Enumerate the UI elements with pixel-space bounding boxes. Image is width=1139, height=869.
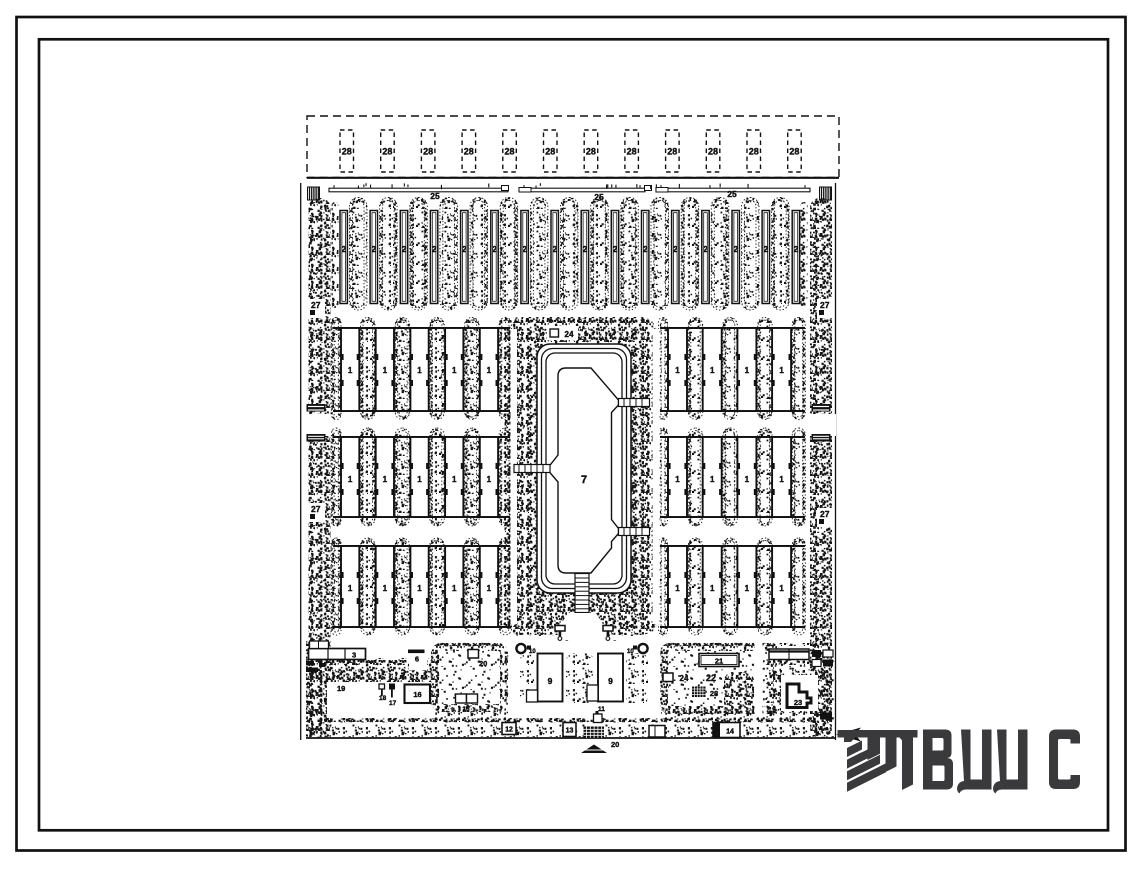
svg-text:2: 2 [643, 245, 648, 254]
svg-text:18: 18 [379, 695, 387, 702]
svg-text:22: 22 [706, 673, 716, 683]
svg-text:1: 1 [417, 475, 422, 484]
svg-text:28: 28 [504, 147, 514, 157]
svg-text:25: 25 [430, 191, 440, 201]
svg-text:21: 21 [715, 657, 723, 666]
svg-text:28: 28 [667, 147, 677, 157]
svg-text:1: 1 [383, 584, 388, 593]
svg-text:2: 2 [703, 245, 708, 254]
svg-text:2: 2 [402, 245, 407, 254]
svg-text:2: 2 [613, 245, 618, 254]
svg-text:1: 1 [675, 584, 680, 593]
svg-text:1: 1 [348, 584, 353, 593]
svg-text:2: 2 [673, 245, 678, 254]
svg-text:20: 20 [479, 659, 487, 668]
svg-text:27: 27 [820, 509, 830, 519]
svg-text:2: 2 [462, 245, 467, 254]
svg-text:1: 1 [745, 366, 750, 375]
svg-text:2: 2 [794, 245, 799, 254]
svg-text:10: 10 [627, 649, 634, 655]
svg-text:2: 2 [522, 245, 527, 254]
svg-text:11: 11 [598, 706, 605, 713]
svg-text:1: 1 [348, 366, 353, 375]
svg-text:1: 1 [417, 366, 422, 375]
svg-text:1: 1 [745, 475, 750, 484]
svg-text:1: 1 [383, 366, 388, 375]
svg-text:28: 28 [710, 689, 718, 698]
svg-text:2: 2 [432, 245, 437, 254]
svg-text:1: 1 [710, 366, 715, 375]
svg-text:1: 1 [452, 366, 457, 375]
svg-text:23: 23 [794, 698, 802, 707]
svg-text:1: 1 [487, 584, 492, 593]
svg-text:15: 15 [462, 706, 470, 713]
svg-text:13: 13 [566, 728, 574, 735]
svg-text:28: 28 [423, 147, 433, 157]
svg-text:9: 9 [548, 676, 553, 686]
svg-text:2: 2 [492, 245, 497, 254]
svg-text:20: 20 [611, 740, 619, 749]
svg-text:28: 28 [382, 147, 392, 157]
svg-text:1: 1 [417, 584, 422, 593]
svg-text:1: 1 [710, 584, 715, 593]
svg-text:1: 1 [675, 475, 680, 484]
svg-text:27: 27 [311, 300, 321, 310]
svg-text:1: 1 [348, 475, 353, 484]
svg-text:1: 1 [487, 366, 492, 375]
svg-text:24: 24 [565, 330, 574, 339]
svg-text:2: 2 [342, 245, 347, 254]
svg-text:1: 1 [779, 366, 784, 375]
svg-text:28: 28 [749, 147, 759, 157]
svg-text:28: 28 [586, 147, 596, 157]
svg-text:28: 28 [342, 147, 352, 157]
svg-text:1: 1 [779, 475, 784, 484]
svg-text:2: 2 [553, 245, 558, 254]
svg-text:2: 2 [764, 245, 769, 254]
svg-text:1: 1 [452, 475, 457, 484]
svg-text:2: 2 [372, 245, 377, 254]
svg-text:1: 1 [779, 584, 784, 593]
svg-text:1: 1 [452, 584, 457, 593]
svg-text:28: 28 [708, 147, 718, 157]
svg-text:3: 3 [352, 651, 356, 660]
svg-text:28: 28 [545, 147, 555, 157]
svg-text:6: 6 [415, 655, 419, 664]
svg-text:9: 9 [608, 676, 613, 686]
svg-text:14: 14 [726, 729, 734, 736]
svg-text:27: 27 [311, 504, 321, 514]
svg-text:28: 28 [464, 147, 474, 157]
svg-text:28: 28 [627, 147, 637, 157]
svg-text:24: 24 [680, 674, 689, 683]
svg-text:12: 12 [505, 727, 513, 734]
svg-text:1: 1 [710, 475, 715, 484]
svg-text:27: 27 [820, 300, 830, 310]
svg-text:1: 1 [487, 475, 492, 484]
svg-text:2: 2 [734, 245, 739, 254]
svg-text:16: 16 [413, 690, 421, 699]
svg-text:28: 28 [789, 147, 799, 157]
svg-text:2: 2 [583, 245, 588, 254]
svg-text:10: 10 [529, 649, 536, 655]
svg-text:25: 25 [727, 189, 737, 199]
svg-text:1: 1 [675, 366, 680, 375]
svg-text:1: 1 [383, 475, 388, 484]
svg-text:19: 19 [337, 684, 345, 693]
svg-text:17: 17 [389, 700, 397, 707]
svg-text:7: 7 [581, 474, 587, 486]
svg-text:1: 1 [745, 584, 750, 593]
